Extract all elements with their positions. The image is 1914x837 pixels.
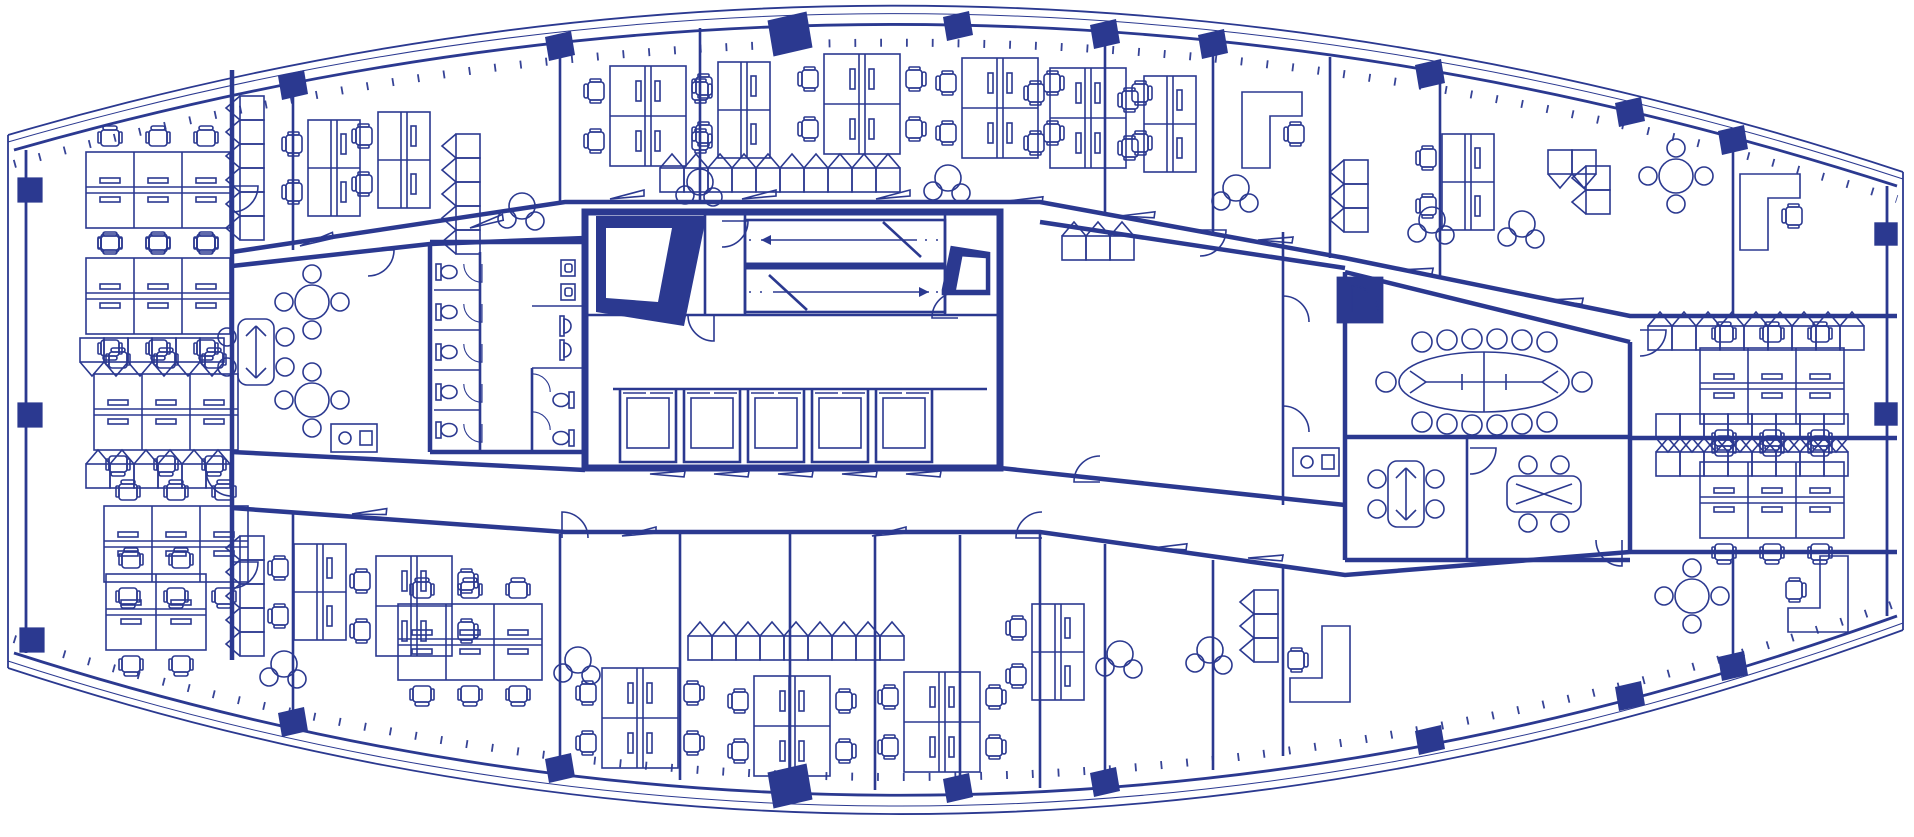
cab-symbol [876,154,900,192]
cab-symbol [688,622,712,660]
bench4-symbol [728,676,856,776]
round4-symbol [1655,559,1729,633]
office-partitions-bottom-band [293,512,1283,790]
bench2v-symbol [352,112,430,208]
col-symbol [19,627,44,652]
facade-inner-bottom [14,616,1897,795]
cab-symbol [1752,438,1776,476]
cab-symbol [712,622,736,660]
cab-symbol [756,154,780,192]
colp-symbol [1198,29,1228,59]
cab-symbol [1330,184,1368,208]
door90-symbol [1640,330,1666,356]
cab-symbol [832,622,856,660]
cab-symbol [1240,614,1278,638]
cab-symbol [1572,190,1610,214]
elev-symbol [748,389,804,462]
cab-symbol [1110,222,1134,260]
bench2v-symbol [1118,76,1196,172]
floor-plan-canvas [0,0,1914,837]
col-symbol [1337,277,1384,324]
bench6-symbol [86,126,230,254]
east-wing-walls [1630,140,1897,664]
mid-block-south-wall-west [232,452,585,470]
lounge3-symbol [1498,211,1544,248]
bench2v-symbol [1416,134,1494,230]
lounge3-symbol [924,165,970,202]
door90-symbol [1283,406,1309,432]
col-symbol [17,177,42,202]
bench2v-symbol [268,544,346,640]
bench2v-symbol [692,62,770,158]
meet4v-symbol [218,319,294,385]
south-corridor-front-wall [232,508,1630,575]
wc-symbol [436,384,457,400]
cab-symbol [442,134,480,158]
cab-symbol [1656,438,1680,476]
central-core [585,212,1000,468]
cab-symbol [1800,438,1824,476]
bench4-symbol [106,548,206,676]
urinal-symbol [561,260,575,276]
floor-plan [0,0,1914,837]
lounge3-symbol [1408,207,1454,244]
cab-symbol [1572,150,1596,188]
cab-symbol [1240,590,1278,614]
elev-symbol [684,389,740,462]
colp-symbol [943,11,973,41]
bench4-symbol [350,556,478,656]
bench4-symbol [936,58,1064,158]
door90-symbol [206,470,232,496]
wc-symbol [553,430,574,446]
elev-symbol [620,389,676,462]
door90-symbol [532,374,550,392]
elev-symbol [876,389,932,462]
bench2v-symbol [1006,604,1084,700]
col-symbol [17,402,42,427]
kitchen-symbol [1293,448,1339,476]
shaft-symbol [596,216,704,326]
sink-symbol [560,316,571,336]
core-outline [585,212,1000,468]
cab-symbol [1656,414,1680,452]
stair-symbol [745,220,945,312]
furniture-layer [17,11,1897,809]
cab-symbol [736,622,760,660]
bench6-symbol [1700,436,1844,564]
colp-symbol [1090,19,1120,49]
colp-symbol [943,773,973,803]
meet4h-symbol [1507,456,1581,532]
lounge3-symbol [260,651,306,688]
bench6-symbol [398,578,542,706]
board16-symbol [1376,329,1592,435]
lounge3-symbol [1186,637,1232,674]
round4-symbol [275,363,349,437]
facade-mullions-bottom [14,603,1897,777]
kitchen-symbol [331,424,377,452]
cab-symbol [828,154,852,192]
door90-symbol [232,186,258,212]
cab-symbol [880,622,904,660]
wc-symbol [436,344,457,360]
cab-symbol [1572,166,1610,190]
cab-symbol [732,154,756,192]
colp-symbol [1415,725,1445,755]
round4-symbol [1639,139,1713,213]
meet4v-symbol [1368,461,1444,527]
bench4-symbol [798,54,926,154]
Ldesk-symbol [1740,174,1802,250]
cab-symbol [856,622,880,660]
cab-symbol [1330,160,1368,184]
colp-symbol [278,707,308,737]
cab-symbol [784,622,808,660]
lounge3-symbol [1212,175,1258,212]
door90-symbol [532,412,550,430]
bench4-symbol [1024,68,1152,168]
lounge3-symbol [1096,641,1142,678]
cab-symbol [808,622,832,660]
colp-symbol [1090,767,1120,797]
toilet-aisle-wall [480,252,532,452]
cab-symbol [780,154,804,192]
bench6-symbol [1700,322,1844,450]
colp-symbol [545,753,575,783]
cab-symbol [660,154,684,192]
urinal-symbol [561,284,575,300]
bench4-symbol [878,672,1006,772]
doorleaf-symbol [610,190,644,199]
bench6-symbol [104,480,248,608]
wc-symbol [436,264,457,280]
cab-symbol [442,158,480,182]
cab-symbol [1704,438,1728,476]
elev-symbol [812,389,868,462]
wc-symbol [436,422,457,438]
colp-symbol [545,31,575,61]
sink-symbol [560,340,571,360]
facade-inner-top [14,24,1897,186]
cab-symbol [442,182,480,206]
shaft-symbol [942,246,991,296]
door90-symbol [368,250,394,276]
wc-symbol [553,392,574,408]
cab-symbol [852,154,876,192]
Ldesk-symbol [1242,92,1304,168]
door90-symbol [1283,296,1309,322]
cab-symbol [804,154,828,192]
Ldesk-symbol [1786,556,1848,632]
cab-symbol [1330,208,1368,232]
colp-symbol [1615,97,1645,127]
colp-symbol [1718,125,1748,155]
door90-symbol [688,315,714,341]
north-corridor-front-wall [232,202,1897,316]
wc-symbol [436,304,457,320]
door90-symbol [1470,448,1496,474]
bench6-symbol [86,232,230,360]
col-symbol [1874,402,1897,425]
Ldesk-symbol [1288,626,1350,702]
colp-symbol [768,12,813,57]
col-symbol [1874,222,1897,245]
cab-symbol [760,622,784,660]
facade-mullions-top [14,43,1897,199]
cab-symbol [1548,150,1572,188]
cab-symbol [1240,638,1278,662]
